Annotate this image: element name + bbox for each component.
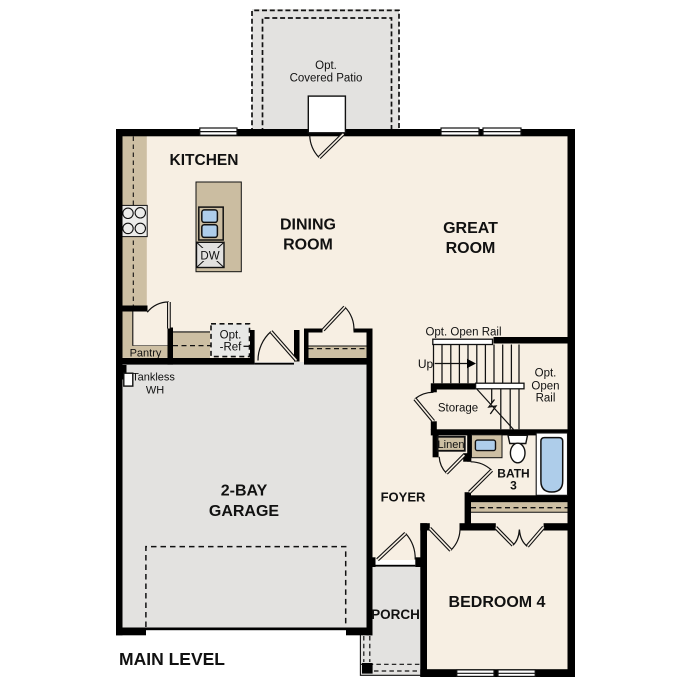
svg-text:2-BAY: 2-BAY <box>221 483 268 500</box>
svg-text:PORCH: PORCH <box>371 607 420 622</box>
svg-text:Linen: Linen <box>438 439 465 451</box>
svg-text:-Ref: -Ref <box>220 342 243 354</box>
svg-text:FOYER: FOYER <box>381 490 426 505</box>
svg-text:Opt.: Opt. <box>315 60 337 72</box>
svg-text:BEDROOM 4: BEDROOM 4 <box>449 594 546 611</box>
svg-text:WH: WH <box>146 385 164 397</box>
svg-text:Up: Up <box>418 357 434 371</box>
svg-text:DW: DW <box>200 251 219 263</box>
svg-text:GREAT: GREAT <box>443 220 498 237</box>
svg-text:ROOM: ROOM <box>446 240 496 257</box>
svg-text:KITCHEN: KITCHEN <box>170 152 239 169</box>
svg-text:Tankless: Tankless <box>132 372 175 384</box>
svg-text:Covered Patio: Covered Patio <box>290 73 363 85</box>
svg-text:Opt.: Opt. <box>220 330 242 342</box>
svg-text:Storage: Storage <box>438 403 478 415</box>
svg-text:DINING: DINING <box>280 217 336 234</box>
svg-text:3: 3 <box>510 479 517 493</box>
svg-text:Pantry: Pantry <box>130 348 162 360</box>
svg-text:GARAGE: GARAGE <box>209 503 280 520</box>
svg-text:Open: Open <box>531 381 559 393</box>
svg-text:MAIN LEVEL: MAIN LEVEL <box>119 649 225 669</box>
svg-text:ROOM: ROOM <box>283 237 333 254</box>
svg-text:Opt.: Opt. <box>535 368 557 380</box>
svg-text:Rail: Rail <box>536 393 556 405</box>
svg-text:Opt. Open Rail: Opt. Open Rail <box>425 327 501 339</box>
